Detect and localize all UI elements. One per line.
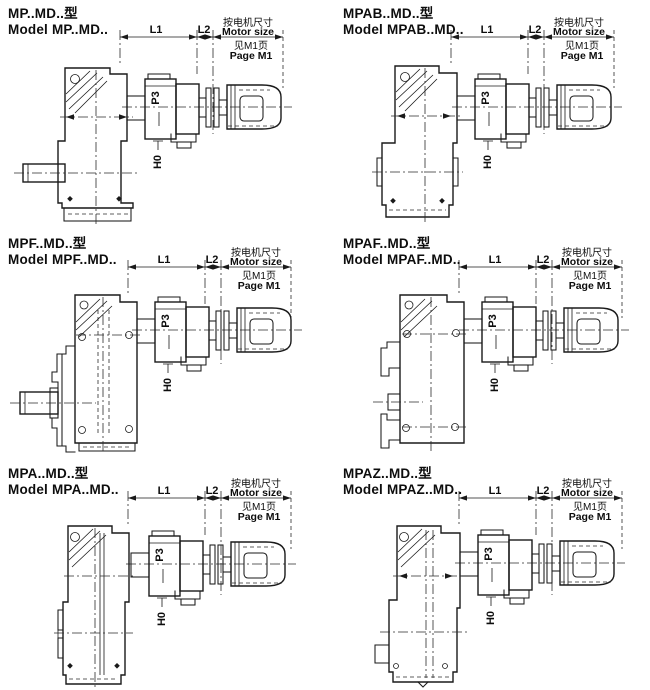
bolt-hole xyxy=(405,301,413,309)
panel-title: MPAZ..MD..型 Model MPAZ..MD.. xyxy=(343,466,462,497)
housing-seam-lines xyxy=(100,533,104,675)
panel-title-cn: MPAB..MD..型 xyxy=(343,6,464,22)
panel-title: MPA..MD..型 Model MPA..MD.. xyxy=(8,466,119,497)
gearbox-body-mpf xyxy=(10,295,141,454)
hatch-lines xyxy=(69,529,106,567)
center-lines xyxy=(380,576,467,632)
panel-mpaf: MPAF..MD..型 Model MPAF..MD.. xyxy=(325,230,650,460)
mounting-flange xyxy=(52,346,75,452)
gearbox-body-mp xyxy=(14,68,140,226)
panel-mpab: MPAB..MD..型 Model MPAB..MD.. xyxy=(325,0,650,230)
panel-title-en: Model MPAZ..MD.. xyxy=(343,482,462,498)
bolt-hole xyxy=(71,533,80,542)
hatch-lines xyxy=(76,299,112,337)
bolt-hole xyxy=(71,75,80,84)
dimension-annotations xyxy=(459,246,622,364)
panel-title-cn: MP..MD..型 xyxy=(8,6,108,22)
bolt-hole xyxy=(126,426,133,433)
inner-seam-lines xyxy=(98,310,109,435)
housing-outline xyxy=(400,295,464,443)
center-lines xyxy=(372,68,463,222)
drive-unit xyxy=(132,297,302,392)
panel-mpaz: MPAZ..MD..型 Model MPAZ..MD.. xyxy=(325,460,650,690)
panel-title-en: Model MPAF..MD.. xyxy=(343,252,461,268)
flange-tab-top xyxy=(381,342,400,376)
flange-tab-bottom xyxy=(381,414,400,448)
panel-title-en: Model MP..MD.. xyxy=(8,22,108,38)
bottom-notch xyxy=(418,682,428,687)
hatch-lines xyxy=(401,299,437,337)
panel-mpf: MPF..MD..型 Model MPF..MD.. xyxy=(0,230,325,460)
bolt-hole xyxy=(453,330,460,337)
panel-title-cn: MPAZ..MD..型 xyxy=(343,466,462,482)
hatch-lines xyxy=(398,529,435,567)
housing-outline xyxy=(63,526,129,684)
panel-title: MPAB..MD..型 Model MPAB..MD.. xyxy=(343,6,464,37)
panel-title: MPF..MD..型 Model MPF..MD.. xyxy=(8,236,117,267)
gearbox-body-mpa xyxy=(54,526,133,688)
hatch-lines xyxy=(66,71,107,113)
bolt-hole xyxy=(400,533,409,542)
housing-outline xyxy=(58,68,133,208)
base-plate xyxy=(64,208,131,221)
hatch-lines xyxy=(396,69,437,111)
drive-unit xyxy=(459,297,629,392)
drive-unit xyxy=(455,530,625,625)
corner-marks xyxy=(67,663,120,669)
panel-title-en: Model MPA..MD.. xyxy=(8,482,119,498)
bolt-hole xyxy=(443,664,448,669)
bolt-hole xyxy=(79,427,86,434)
housing-seam-lines xyxy=(426,530,433,678)
bolt-hole xyxy=(403,425,410,432)
drive-unit xyxy=(452,74,622,169)
panel-title: MPAF..MD..型 Model MPAF..MD.. xyxy=(343,236,461,267)
panel-title-en: Model MPAB..MD.. xyxy=(343,22,464,38)
bolt-hole xyxy=(401,73,410,82)
panel-title-cn: MPF..MD..型 xyxy=(8,236,117,252)
gearbox-body-mpab xyxy=(372,66,463,222)
torque-bracket-foot xyxy=(375,645,389,663)
gearbox-body-mpaz xyxy=(375,526,467,687)
panel-title-cn: MPAF..MD..型 xyxy=(343,236,461,252)
drive-unit xyxy=(122,74,292,169)
panel-title-cn: MPA..MD..型 xyxy=(8,466,119,482)
panel-title-en: Model MPF..MD.. xyxy=(8,252,117,268)
housing-outline xyxy=(389,526,460,682)
panel-title: MP..MD..型 Model MP..MD.. xyxy=(8,6,108,37)
panel-mpa: MPA..MD..型 Model MPA..MD.. xyxy=(0,460,325,690)
housing-outline xyxy=(75,295,137,443)
panel-mp: MP..MD..型 Model MP..MD.. xyxy=(0,0,325,230)
catalog-page: L1 L2 按电机尺寸 Motor size 见M1页 Page M1 xyxy=(0,0,650,690)
corner-marks xyxy=(390,198,445,204)
hub-side-bumps xyxy=(58,610,63,658)
corner-marks xyxy=(67,196,122,202)
gearbox-body-mpaf xyxy=(373,295,468,454)
center-lines xyxy=(54,528,133,688)
bolt-hole xyxy=(80,301,88,309)
dimension-annotations xyxy=(459,477,622,595)
bolt-hole xyxy=(394,664,399,669)
drive-unit xyxy=(126,531,296,626)
housing-outline xyxy=(382,66,457,217)
